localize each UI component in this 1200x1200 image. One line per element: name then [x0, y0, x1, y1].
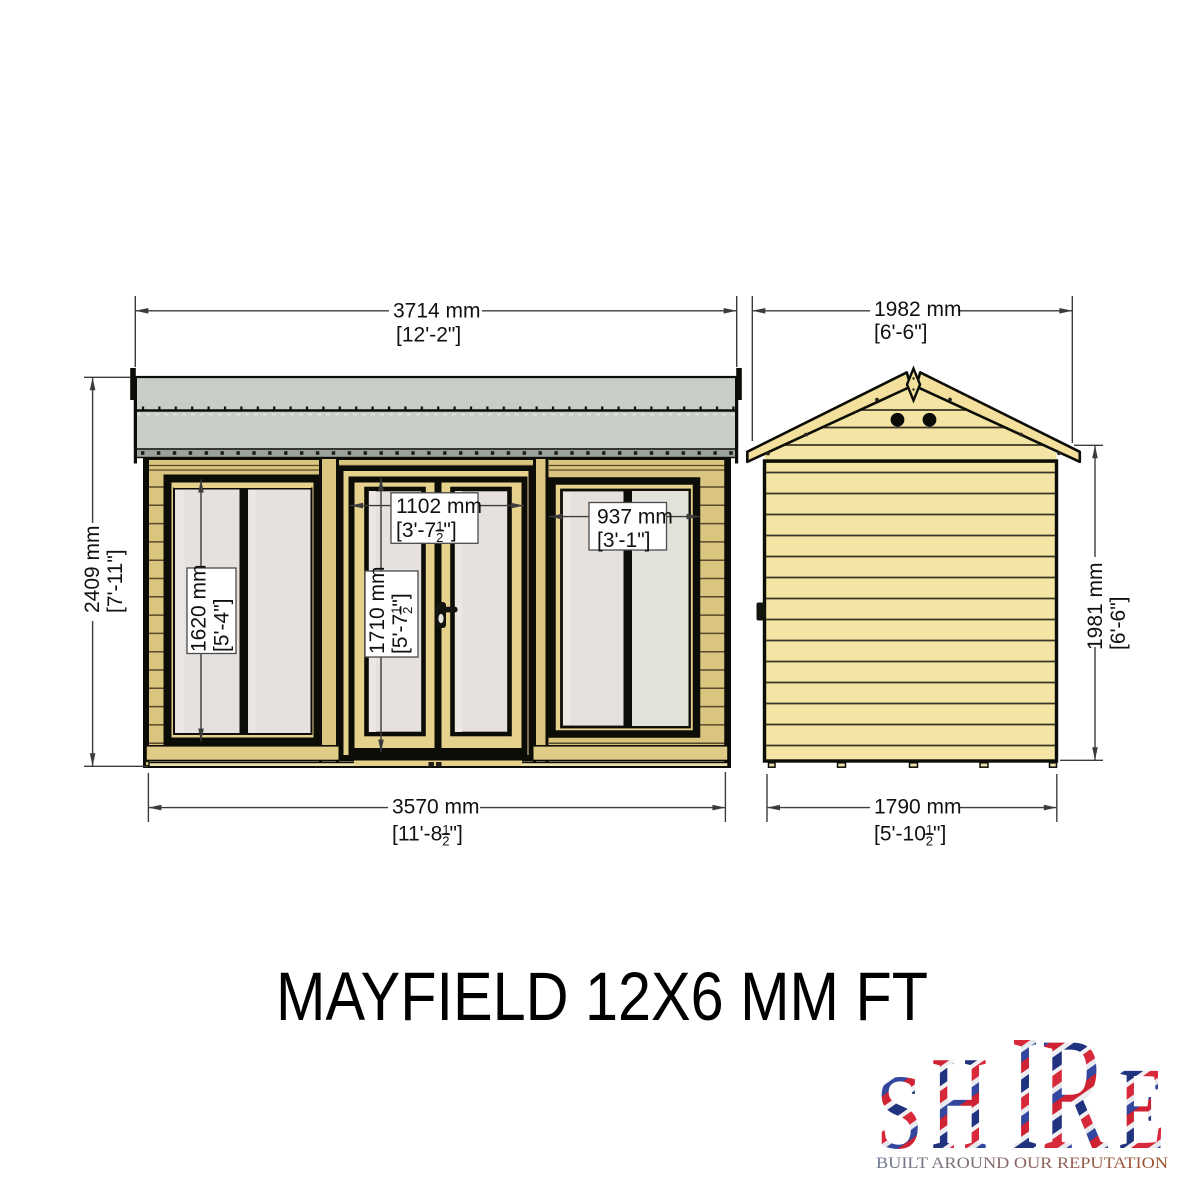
- svg-text:BUILT AROUND OUR REPUTATION: BUILT AROUND OUR REPUTATION: [876, 1155, 1168, 1172]
- svg-text:1710 mm: 1710 mm: [366, 566, 389, 654]
- svg-text:[3'-1"]: [3'-1"]: [597, 529, 650, 552]
- svg-text:1102 mm: 1102 mm: [396, 495, 482, 518]
- svg-text:2409 mm: 2409 mm: [81, 525, 104, 613]
- svg-text:[7'-11"]: [7'-11"]: [104, 549, 127, 613]
- svg-text:1790 mm: 1790 mm: [874, 796, 962, 819]
- svg-text:[5'-712"]: [5'-712"]: [389, 593, 416, 654]
- svg-text:1982 mm: 1982 mm: [874, 298, 962, 321]
- svg-text:1620 mm: 1620 mm: [188, 564, 211, 652]
- svg-text:3714 mm: 3714 mm: [393, 300, 481, 323]
- svg-text:[6'-6"]: [6'-6"]: [1107, 597, 1130, 650]
- svg-text:[6'-6"]: [6'-6"]: [874, 321, 927, 344]
- svg-text:1981 mm: 1981 mm: [1084, 562, 1107, 650]
- svg-text:937 mm: 937 mm: [597, 506, 673, 529]
- svg-text:[11'-812"]: [11'-812"]: [392, 822, 463, 849]
- svg-text:[5'-4"]: [5'-4"]: [211, 599, 234, 652]
- svg-text:MAYFIELD 12X6 MM FT: MAYFIELD 12X6 MM FT: [276, 958, 928, 1035]
- svg-text:[12'-2"]: [12'-2"]: [396, 324, 461, 347]
- svg-text:[3'-712"]: [3'-712"]: [396, 519, 457, 546]
- svg-text:[5'-1012"]: [5'-1012"]: [874, 822, 946, 849]
- svg-text:3570 mm: 3570 mm: [392, 796, 480, 819]
